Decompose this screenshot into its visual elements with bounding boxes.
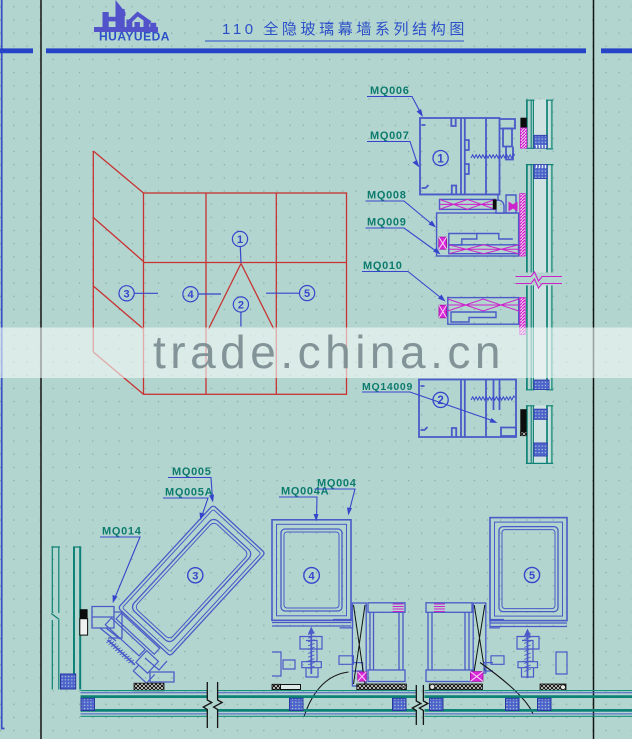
svg-text:2: 2	[437, 395, 443, 407]
svg-text:3: 3	[192, 570, 198, 582]
svg-text:MQ010: MQ010	[363, 260, 403, 272]
svg-text:MQ007: MQ007	[370, 130, 410, 142]
svg-text:MQ006: MQ006	[370, 85, 410, 97]
svg-text:5: 5	[529, 570, 535, 582]
svg-text:3: 3	[124, 288, 130, 300]
svg-text:2: 2	[238, 300, 244, 312]
svg-text:MQ004A: MQ004A	[281, 486, 329, 498]
svg-text:MQ14009: MQ14009	[362, 381, 413, 393]
svg-text:MQ009: MQ009	[367, 217, 407, 229]
svg-text:MQ008: MQ008	[367, 190, 407, 202]
svg-text:4: 4	[187, 289, 194, 301]
svg-text:1: 1	[437, 153, 444, 165]
svg-text:MQ005A: MQ005A	[165, 487, 213, 499]
svg-text:HUAYUEDA: HUAYUEDA	[99, 30, 170, 44]
svg-text:4: 4	[309, 571, 316, 583]
svg-text:110 全隐玻璃幕墙系列结构图: 110 全隐玻璃幕墙系列结构图	[222, 20, 468, 38]
svg-text:trade.china.cn: trade.china.cn	[153, 326, 505, 378]
svg-text:MQ014: MQ014	[102, 526, 142, 538]
svg-text:MQ005: MQ005	[172, 466, 212, 478]
svg-text:1: 1	[237, 234, 243, 246]
svg-text:5: 5	[304, 288, 310, 300]
